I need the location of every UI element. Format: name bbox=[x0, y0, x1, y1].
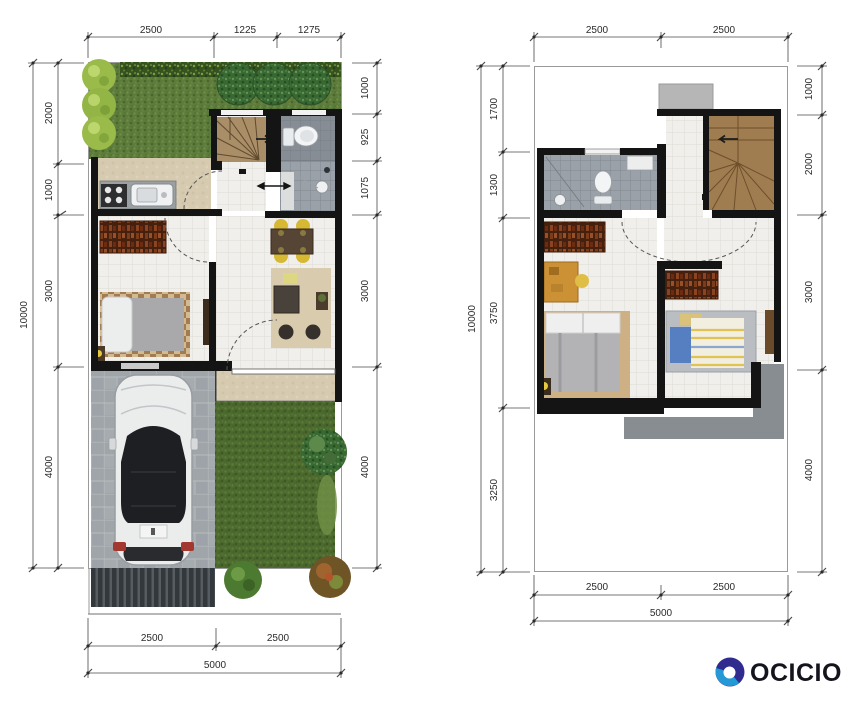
svg-text:1075: 1075 bbox=[360, 176, 371, 199]
svg-text:3250: 3250 bbox=[489, 478, 500, 501]
svg-text:4000: 4000 bbox=[44, 455, 55, 478]
svg-text:10000: 10000 bbox=[19, 301, 30, 329]
svg-text:3000: 3000 bbox=[360, 279, 371, 302]
svg-text:1000: 1000 bbox=[360, 76, 371, 99]
svg-text:925: 925 bbox=[360, 128, 371, 145]
svg-text:3000: 3000 bbox=[804, 280, 815, 303]
svg-text:2000: 2000 bbox=[804, 152, 815, 175]
svg-text:2500: 2500 bbox=[713, 25, 736, 36]
svg-text:4000: 4000 bbox=[804, 458, 815, 481]
svg-text:2500: 2500 bbox=[586, 25, 609, 36]
svg-text:1275: 1275 bbox=[298, 25, 321, 36]
svg-text:1000: 1000 bbox=[44, 178, 55, 201]
svg-text:1300: 1300 bbox=[489, 173, 500, 196]
svg-text:4000: 4000 bbox=[360, 455, 371, 478]
svg-text:2500: 2500 bbox=[713, 582, 736, 593]
svg-text:3750: 3750 bbox=[489, 301, 500, 324]
svg-text:5000: 5000 bbox=[650, 608, 673, 619]
svg-text:2500: 2500 bbox=[140, 25, 163, 36]
svg-text:2500: 2500 bbox=[141, 633, 164, 644]
svg-text:1700: 1700 bbox=[489, 97, 500, 120]
svg-text:3000: 3000 bbox=[44, 279, 55, 302]
svg-text:2500: 2500 bbox=[267, 633, 290, 644]
svg-text:2000: 2000 bbox=[44, 101, 55, 124]
svg-text:1225: 1225 bbox=[234, 25, 257, 36]
svg-text:OCICIO: OCICIO bbox=[750, 659, 842, 687]
svg-text:10000: 10000 bbox=[467, 305, 478, 333]
svg-text:2500: 2500 bbox=[586, 582, 609, 593]
svg-text:5000: 5000 bbox=[204, 660, 227, 671]
svg-text:1000: 1000 bbox=[804, 77, 815, 100]
